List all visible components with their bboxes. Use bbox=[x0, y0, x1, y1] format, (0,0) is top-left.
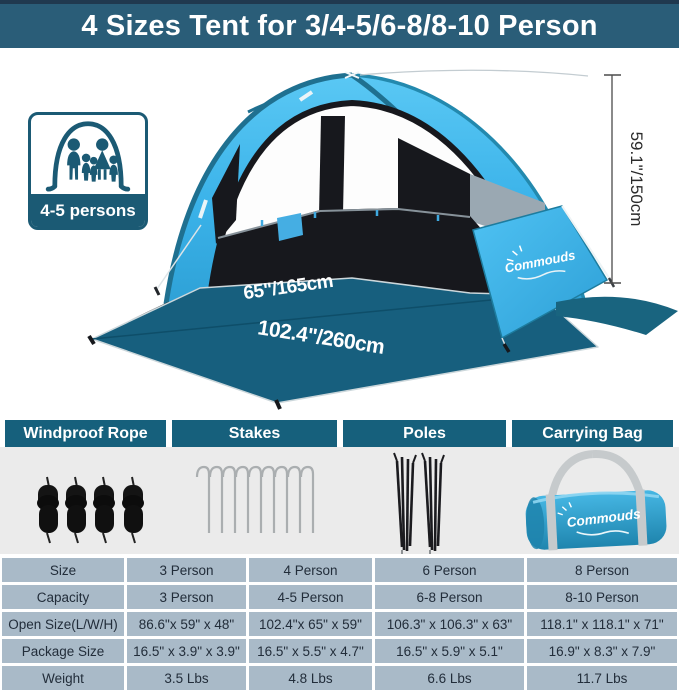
height-label: 59.1"/150cm bbox=[627, 132, 646, 227]
spec-row-label: Capacity bbox=[2, 585, 124, 609]
spec-cell: 16.5" x 3.9" x 3.9" bbox=[127, 639, 246, 663]
center-pillar bbox=[319, 116, 345, 216]
part-header-windproof-rope: Windproof Rope bbox=[5, 420, 166, 447]
stakes-icon bbox=[197, 467, 313, 533]
spec-header-4p: 4 Person bbox=[249, 558, 372, 582]
part-header-stakes: Stakes bbox=[172, 420, 337, 447]
carrying-bag-icon: Commouds bbox=[523, 450, 668, 551]
spec-cell: 86.6"x 59" x 48" bbox=[127, 612, 246, 636]
height-dimension-line: 59.1"/150cm bbox=[604, 75, 646, 283]
spec-cell: 16.9" x 8.3" x 7.9" bbox=[527, 639, 677, 663]
spec-cell: 11.7 Lbs bbox=[527, 666, 677, 690]
spec-cell: 6-8 Person bbox=[375, 585, 524, 609]
rope-bundles-icon bbox=[37, 477, 144, 543]
parts-band: Commouds bbox=[0, 447, 679, 554]
spec-row-label: Weight bbox=[2, 666, 124, 690]
spec-cell: 16.5" x 5.5" x 4.7" bbox=[249, 639, 372, 663]
spec-header-6p: 6 Person bbox=[375, 558, 524, 582]
spec-table: Size 3 Person 4 Person 6 Person 8 Person… bbox=[2, 558, 677, 690]
spec-cell: 102.4"x 65" x 59" bbox=[249, 612, 372, 636]
spec-cell: 106.3" x 106.3" x 63" bbox=[375, 612, 524, 636]
banner-title: 4 Sizes Tent for 3/4-5/6-8/8-10 Person bbox=[81, 10, 597, 43]
spec-row-label: Open Size(L/W/H) bbox=[2, 612, 124, 636]
spec-header-3p: 3 Person bbox=[127, 558, 246, 582]
spec-cell: 6.6 Lbs bbox=[375, 666, 524, 690]
spec-cell: 4-5 Person bbox=[249, 585, 372, 609]
spec-cell: 16.5" x 5.9" x 5.1" bbox=[375, 639, 524, 663]
tent-diagram: Commouds 59.1"/150cm 65"/165cm 102.4"/26… bbox=[0, 48, 679, 415]
spec-cell: 3 Person bbox=[127, 585, 246, 609]
part-header-poles: Poles bbox=[343, 420, 506, 447]
spec-header-size: Size bbox=[2, 558, 124, 582]
spec-cell: 118.1" x 118.1" x 71" bbox=[527, 612, 677, 636]
poles-icon bbox=[394, 453, 444, 554]
product-infographic: 4 Sizes Tent for 3/4-5/6-8/8-10 Person bbox=[0, 0, 679, 692]
spec-cell: 3.5 Lbs bbox=[127, 666, 246, 690]
spec-cell: 8-10 Person bbox=[527, 585, 677, 609]
spec-cell: 4.8 Lbs bbox=[249, 666, 372, 690]
parts-icons: Commouds bbox=[0, 447, 679, 554]
spec-row-label: Package Size bbox=[2, 639, 124, 663]
part-header-carrying-bag: Carrying Bag bbox=[512, 420, 673, 447]
banner: 4 Sizes Tent for 3/4-5/6-8/8-10 Person bbox=[0, 0, 679, 48]
spec-header-8p: 8 Person bbox=[527, 558, 677, 582]
